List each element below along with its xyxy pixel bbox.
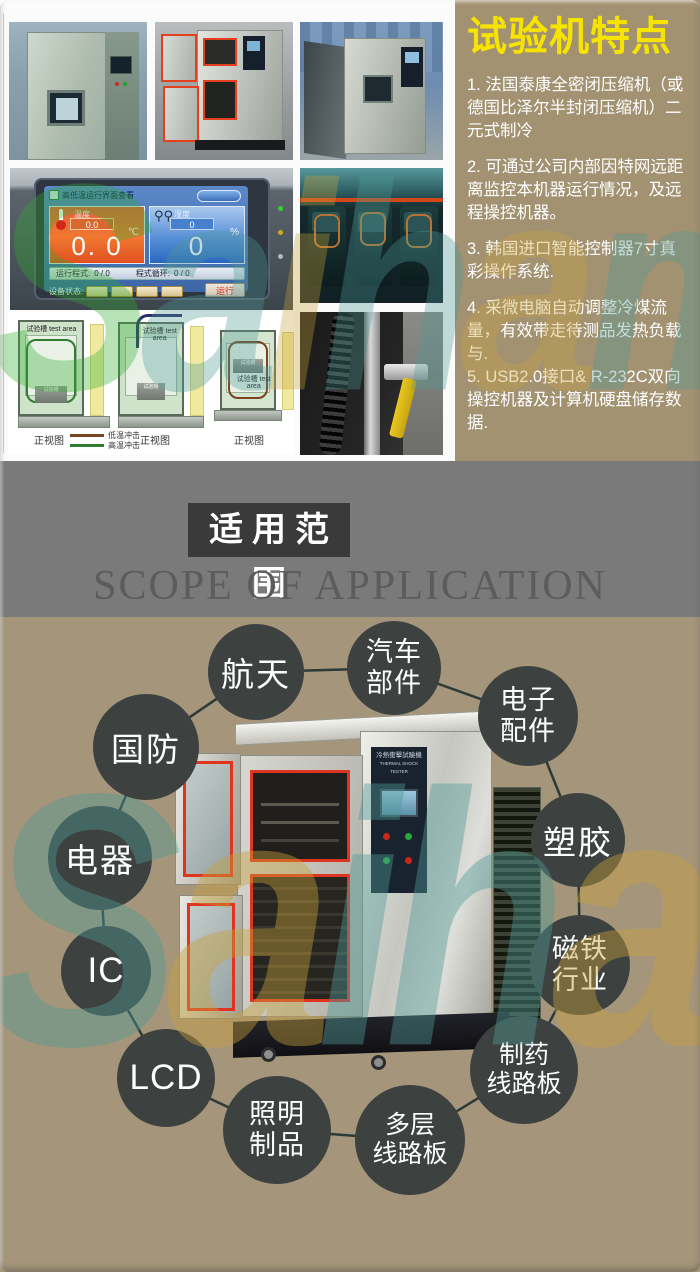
machine-base xyxy=(195,140,285,150)
caster-wheel xyxy=(261,1047,276,1062)
program-label: 运行程式: xyxy=(56,268,90,279)
temperature-value: 0. 0 xyxy=(50,231,144,262)
status-button xyxy=(161,286,183,297)
green-button xyxy=(383,857,390,864)
applications-section: 冷熱衝擊試驗機 THERMAL SHOCK TESTER 航天 汽车 部件 电子… xyxy=(0,617,700,1272)
product-detail-page: 高低温运行界面查看 温度 0.0 ℃ 0. 0 ⚲⚲ 湿度 0 % xyxy=(0,0,700,1272)
thermometer-icon xyxy=(54,209,68,231)
app-circle-appliances: 电器 xyxy=(48,806,152,910)
front-view-label-1: 正视图 xyxy=(34,432,64,447)
chamber-side xyxy=(304,41,346,159)
compressor-photo xyxy=(300,168,443,303)
program-status-row: 运行程式: 0 / 0 程式循环: 0 / 0 xyxy=(49,267,245,280)
control-panel xyxy=(243,36,265,70)
cold-line-swatch xyxy=(70,434,104,437)
green-button xyxy=(405,833,412,840)
valve-photo xyxy=(300,312,443,455)
app-circle-aerospace: 航天 xyxy=(208,624,304,720)
app-circle-plastics: 塑胶 xyxy=(531,793,625,887)
left-edge-line xyxy=(3,13,4,453)
temperature-setpoint: 0.0 xyxy=(70,218,114,230)
program-value: 0 / 0 xyxy=(94,269,110,278)
green-indicator xyxy=(123,82,127,86)
top-section: 高低温运行界面查看 温度 0.0 ℃ 0. 0 ⚲⚲ 湿度 0 % xyxy=(0,0,700,461)
front-view-label-2: 正视图 xyxy=(140,432,170,447)
temperature-panel: 温度 0.0 ℃ 0. 0 xyxy=(49,206,145,264)
copper-pipe xyxy=(314,214,340,248)
machine-chamber xyxy=(237,755,363,1017)
tray-label: 试验槽 xyxy=(233,359,262,373)
status-label: 设备状态: xyxy=(49,286,83,297)
steel-bar xyxy=(364,312,380,455)
chamber-label: 试验槽 test area xyxy=(26,326,76,333)
yellow-led xyxy=(278,230,283,235)
chamber-front xyxy=(344,38,426,154)
feature-item-4: 4. 采微电脑自动调整冷煤流量，有效带走待测品发热负载与. xyxy=(467,297,688,366)
legend-row-hot: 高温冲击 xyxy=(70,440,140,450)
chamber-opening-lower xyxy=(250,874,350,1002)
scope-banner: 适用范围 SCOPE OF APPLICATION xyxy=(0,461,700,617)
control-panel xyxy=(401,47,423,87)
ui-top-button xyxy=(197,190,241,202)
duct-bar xyxy=(190,326,204,416)
app-circle-multilayer-pcb: 多层 线路板 xyxy=(355,1085,465,1195)
humidity-setpoint: 0 xyxy=(170,218,214,230)
tray-label: 试验槽 xyxy=(35,386,67,403)
schematic-base xyxy=(18,416,110,428)
app-circle-magnet-industry: 磁铁 行业 xyxy=(530,915,630,1015)
chamber-photo-1 xyxy=(9,22,147,160)
schematic-base xyxy=(118,416,204,428)
green-led xyxy=(278,206,283,211)
legend-label-hot: 高温冲击 xyxy=(108,440,140,451)
chamber-opening-lower xyxy=(203,80,237,120)
red-button xyxy=(405,857,412,864)
feature-item-1: 1. 法国泰康全密闭压缩机（或德国比泽尔半封闭压缩机）二元式制冷 xyxy=(467,74,688,143)
app-circle-ic: IC xyxy=(61,926,151,1016)
open-door-lower xyxy=(163,86,199,142)
app-icon xyxy=(49,190,59,200)
chamber-window xyxy=(363,75,393,103)
caster-wheel xyxy=(371,1055,386,1070)
device-status-row: 设备状态: 运行 xyxy=(49,283,245,299)
corrugated-hose xyxy=(319,312,356,455)
legend-row-cold: 低温冲击 xyxy=(70,430,140,440)
cycle-label: 程式循环: xyxy=(136,268,170,279)
gray-led xyxy=(278,254,283,259)
ui-title: 高低温运行界面查看 xyxy=(62,191,134,200)
app-circle-pharma-pcb: 制药 线路板 xyxy=(470,1016,578,1124)
photo-collage: 高低温运行界面查看 温度 0.0 ℃ 0. 0 ⚲⚲ 湿度 0 % xyxy=(0,0,455,461)
app-circle-defense: 国防 xyxy=(93,694,199,800)
duct-bar xyxy=(90,324,104,416)
chamber-window xyxy=(47,90,85,126)
feature-item-2: 2. 可通过公司内部因特网远距离监控本机器运行情况，及远程操控机器。 xyxy=(467,156,688,225)
front-view-label-3: 正视图 xyxy=(234,432,264,447)
chamber-mini-screen xyxy=(110,56,132,74)
features-title: 试验机特点 xyxy=(467,14,688,60)
chamber-opening-upper xyxy=(203,38,237,66)
schematic-3: 试验槽 试验槽 test area xyxy=(220,330,276,410)
tray-label: 试验槽 xyxy=(137,383,164,399)
duct-bar xyxy=(282,332,294,410)
controller-photo: 高低温运行界面查看 温度 0.0 ℃ 0. 0 ⚲⚲ 湿度 0 % xyxy=(10,168,293,310)
cycle-value: 0 / 0 xyxy=(174,269,190,278)
copper-pipe xyxy=(406,214,432,248)
status-button xyxy=(86,286,108,297)
touchscreen-ui: 高低温运行界面查看 温度 0.0 ℃ 0. 0 ⚲⚲ 湿度 0 % xyxy=(44,186,248,292)
chamber-opening-upper xyxy=(250,770,350,862)
hot-line-swatch xyxy=(70,444,104,447)
red-button xyxy=(383,833,390,840)
app-circle-lighting-products: 照明 制品 xyxy=(223,1076,331,1184)
banner-title-en: SCOPE OF APPLICATION xyxy=(0,562,700,610)
machine-screen xyxy=(380,789,418,817)
run-button: 运行 xyxy=(205,283,245,297)
machine-plate-line2: THERMAL SHOCK TESTER xyxy=(371,760,427,776)
copper-pipe xyxy=(360,212,386,246)
chamber-photo-2 xyxy=(155,22,293,160)
humidity-value: 0 xyxy=(150,231,244,262)
chamber-label: 试验槽 test area xyxy=(233,376,274,390)
banner-title-cn: 适用范围 xyxy=(188,503,350,557)
open-door-upper xyxy=(161,34,197,82)
chamber-photo-3 xyxy=(300,22,443,160)
app-circle-auto-parts: 汽车 部件 xyxy=(347,621,441,715)
open-door-lower xyxy=(179,895,243,1019)
feature-item-3: 3. 韩国进口智能控制器7寸真彩操作系统. xyxy=(467,238,688,284)
app-circle-lcd: LCD xyxy=(117,1029,215,1127)
water-drops-icon: ⚲⚲ xyxy=(154,209,168,231)
machine-control-panel: 冷熱衝擊試驗機 THERMAL SHOCK TESTER xyxy=(371,747,427,893)
orange-cable xyxy=(300,198,443,202)
features-panel: 试验机特点 1. 法国泰康全密闭压缩机（或德国比泽尔半封闭压缩机）二元式制冷 2… xyxy=(455,0,700,461)
schematic-1: 试验槽 test area 试验槽 xyxy=(18,320,84,416)
diagram-legend: 低温冲击 高温冲击 xyxy=(70,430,140,450)
schematic-base xyxy=(214,410,282,421)
status-button xyxy=(111,286,133,297)
humidity-panel: ⚲⚲ 湿度 0 % 0 xyxy=(149,206,245,264)
airflow-diagram: 试验槽 test area 试验槽 试验槽 test area 试验槽 xyxy=(8,312,295,455)
app-circle-electronic-accessories: 电子 配件 xyxy=(478,666,578,766)
feature-item-5: 5. USB2.0接口& R-232C双向操控机器及计算机硬盘储存数据. xyxy=(467,366,688,435)
machine-plate-line1: 冷熱衝擊試驗機 xyxy=(371,752,427,760)
red-indicator xyxy=(115,82,119,86)
status-button xyxy=(136,286,158,297)
chamber-control-strip xyxy=(105,32,139,160)
ui-title-bar: 高低温运行界面查看 xyxy=(49,189,243,203)
pipe-line xyxy=(136,314,182,348)
